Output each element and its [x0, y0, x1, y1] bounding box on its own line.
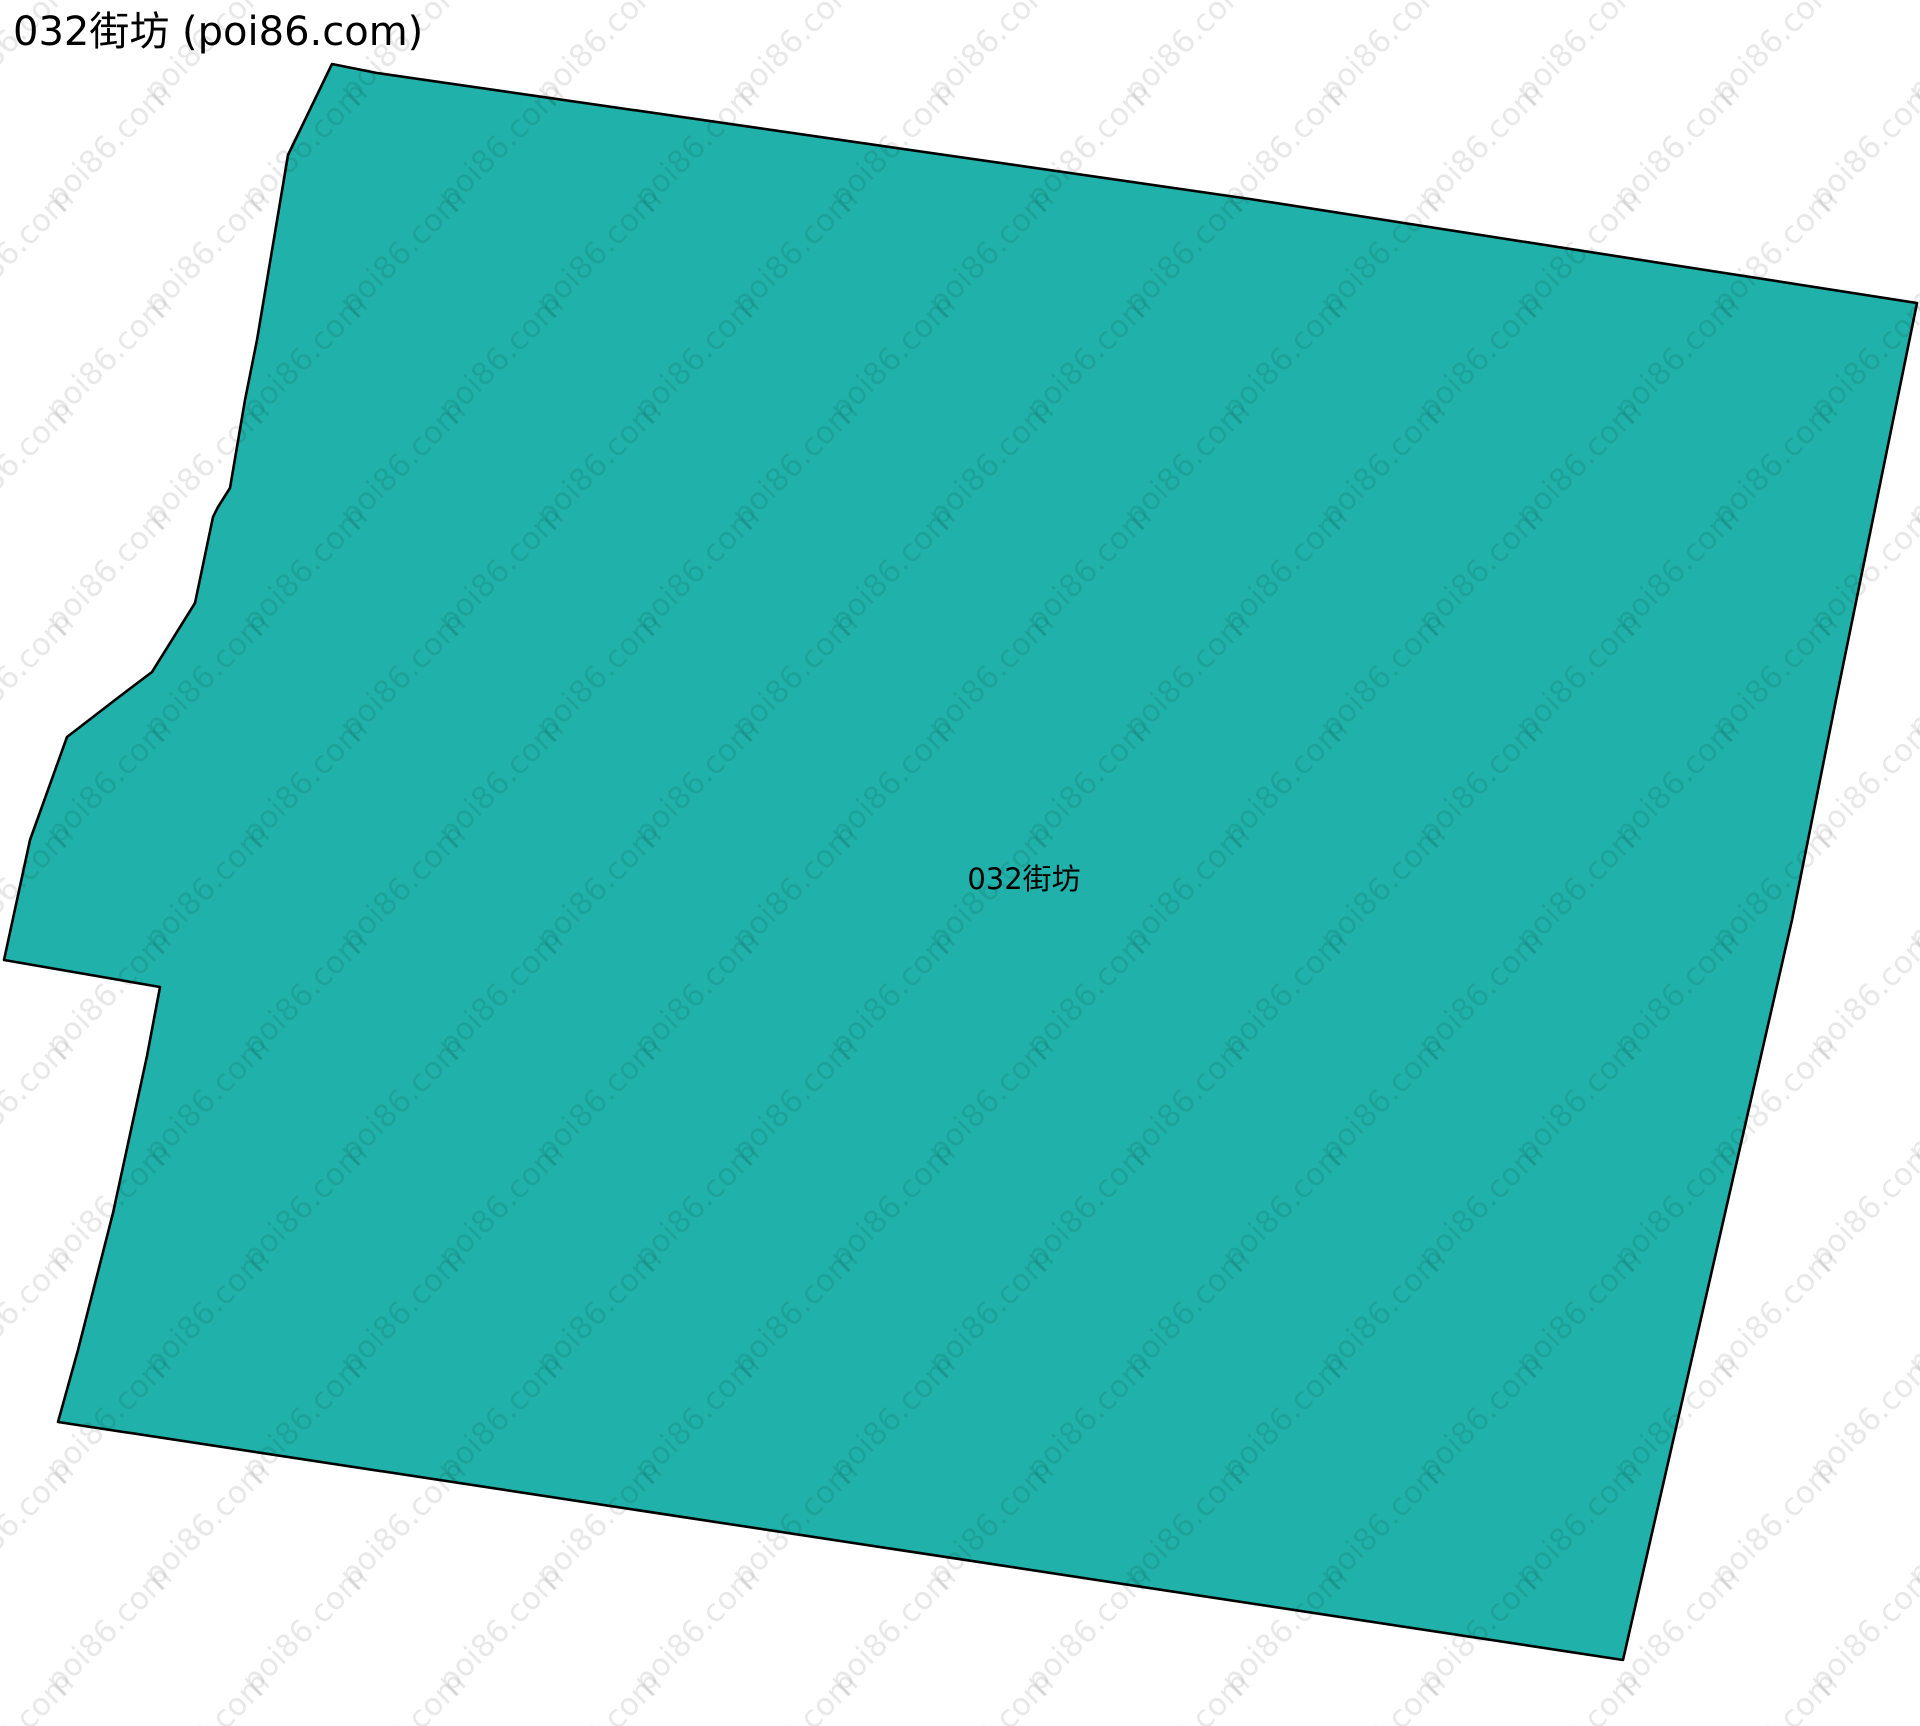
region-label: 032街坊 [967, 856, 1080, 898]
watermark-text: poi86.com [1509, 1665, 1650, 1726]
watermark-text: poi86.com [0, 393, 81, 534]
watermark-text: poi86.com [725, 1665, 866, 1726]
watermark-text: poi86.com [1705, 1665, 1846, 1726]
watermark-text: poi86.com [0, 605, 81, 746]
region-map: poi86.compoi86.compoi86.compoi86.compoi8… [0, 0, 1920, 1726]
watermark-text: poi86.com [1117, 1665, 1258, 1726]
watermark-text: poi86.com [0, 181, 81, 322]
watermark-text: poi86.com [1901, 1665, 1920, 1726]
watermark-text: poi86.com [1313, 1665, 1454, 1726]
watermark-text: poi86.com [0, 1241, 81, 1382]
watermark-text: poi86.com [921, 1665, 1062, 1726]
watermark-text: poi86.com [0, 1029, 81, 1170]
watermark-text: poi86.com [137, 1665, 278, 1726]
watermark-text: poi86.com [333, 1665, 474, 1726]
watermark-text: poi86.com [529, 1665, 670, 1726]
map-canvas: poi86.compoi86.compoi86.compoi86.compoi8… [0, 0, 1920, 1726]
page-title: 032街坊 (poi86.com) [13, 8, 423, 56]
watermark-text: poi86.com [0, 1453, 81, 1594]
